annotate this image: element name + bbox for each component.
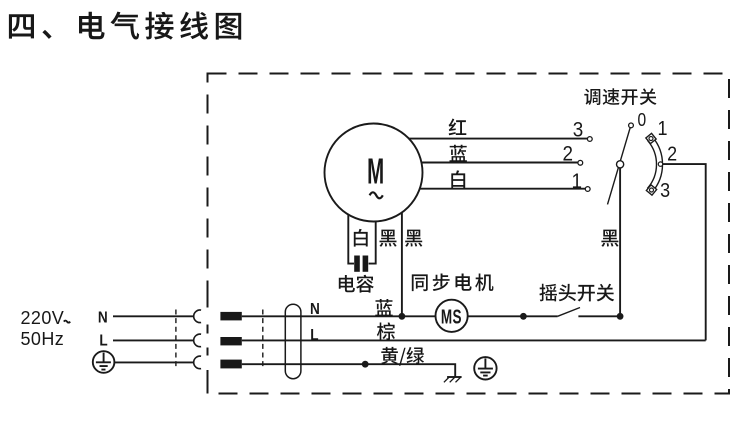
- svg-text:L: L: [310, 327, 318, 344]
- svg-text:1: 1: [571, 170, 582, 193]
- svg-text:N: N: [98, 309, 108, 326]
- svg-text:3: 3: [573, 119, 584, 142]
- svg-text:2: 2: [563, 143, 574, 166]
- svg-text:220V: 220V: [21, 308, 65, 328]
- svg-text:2: 2: [667, 144, 677, 166]
- svg-text:0: 0: [637, 110, 646, 131]
- svg-text:MS: MS: [441, 305, 462, 329]
- svg-text:M: M: [367, 151, 384, 192]
- svg-text:50Hz: 50Hz: [21, 329, 65, 349]
- svg-text:N: N: [310, 301, 320, 318]
- svg-text:3: 3: [660, 180, 670, 202]
- svg-text:1: 1: [657, 118, 667, 140]
- svg-text:L: L: [99, 333, 107, 350]
